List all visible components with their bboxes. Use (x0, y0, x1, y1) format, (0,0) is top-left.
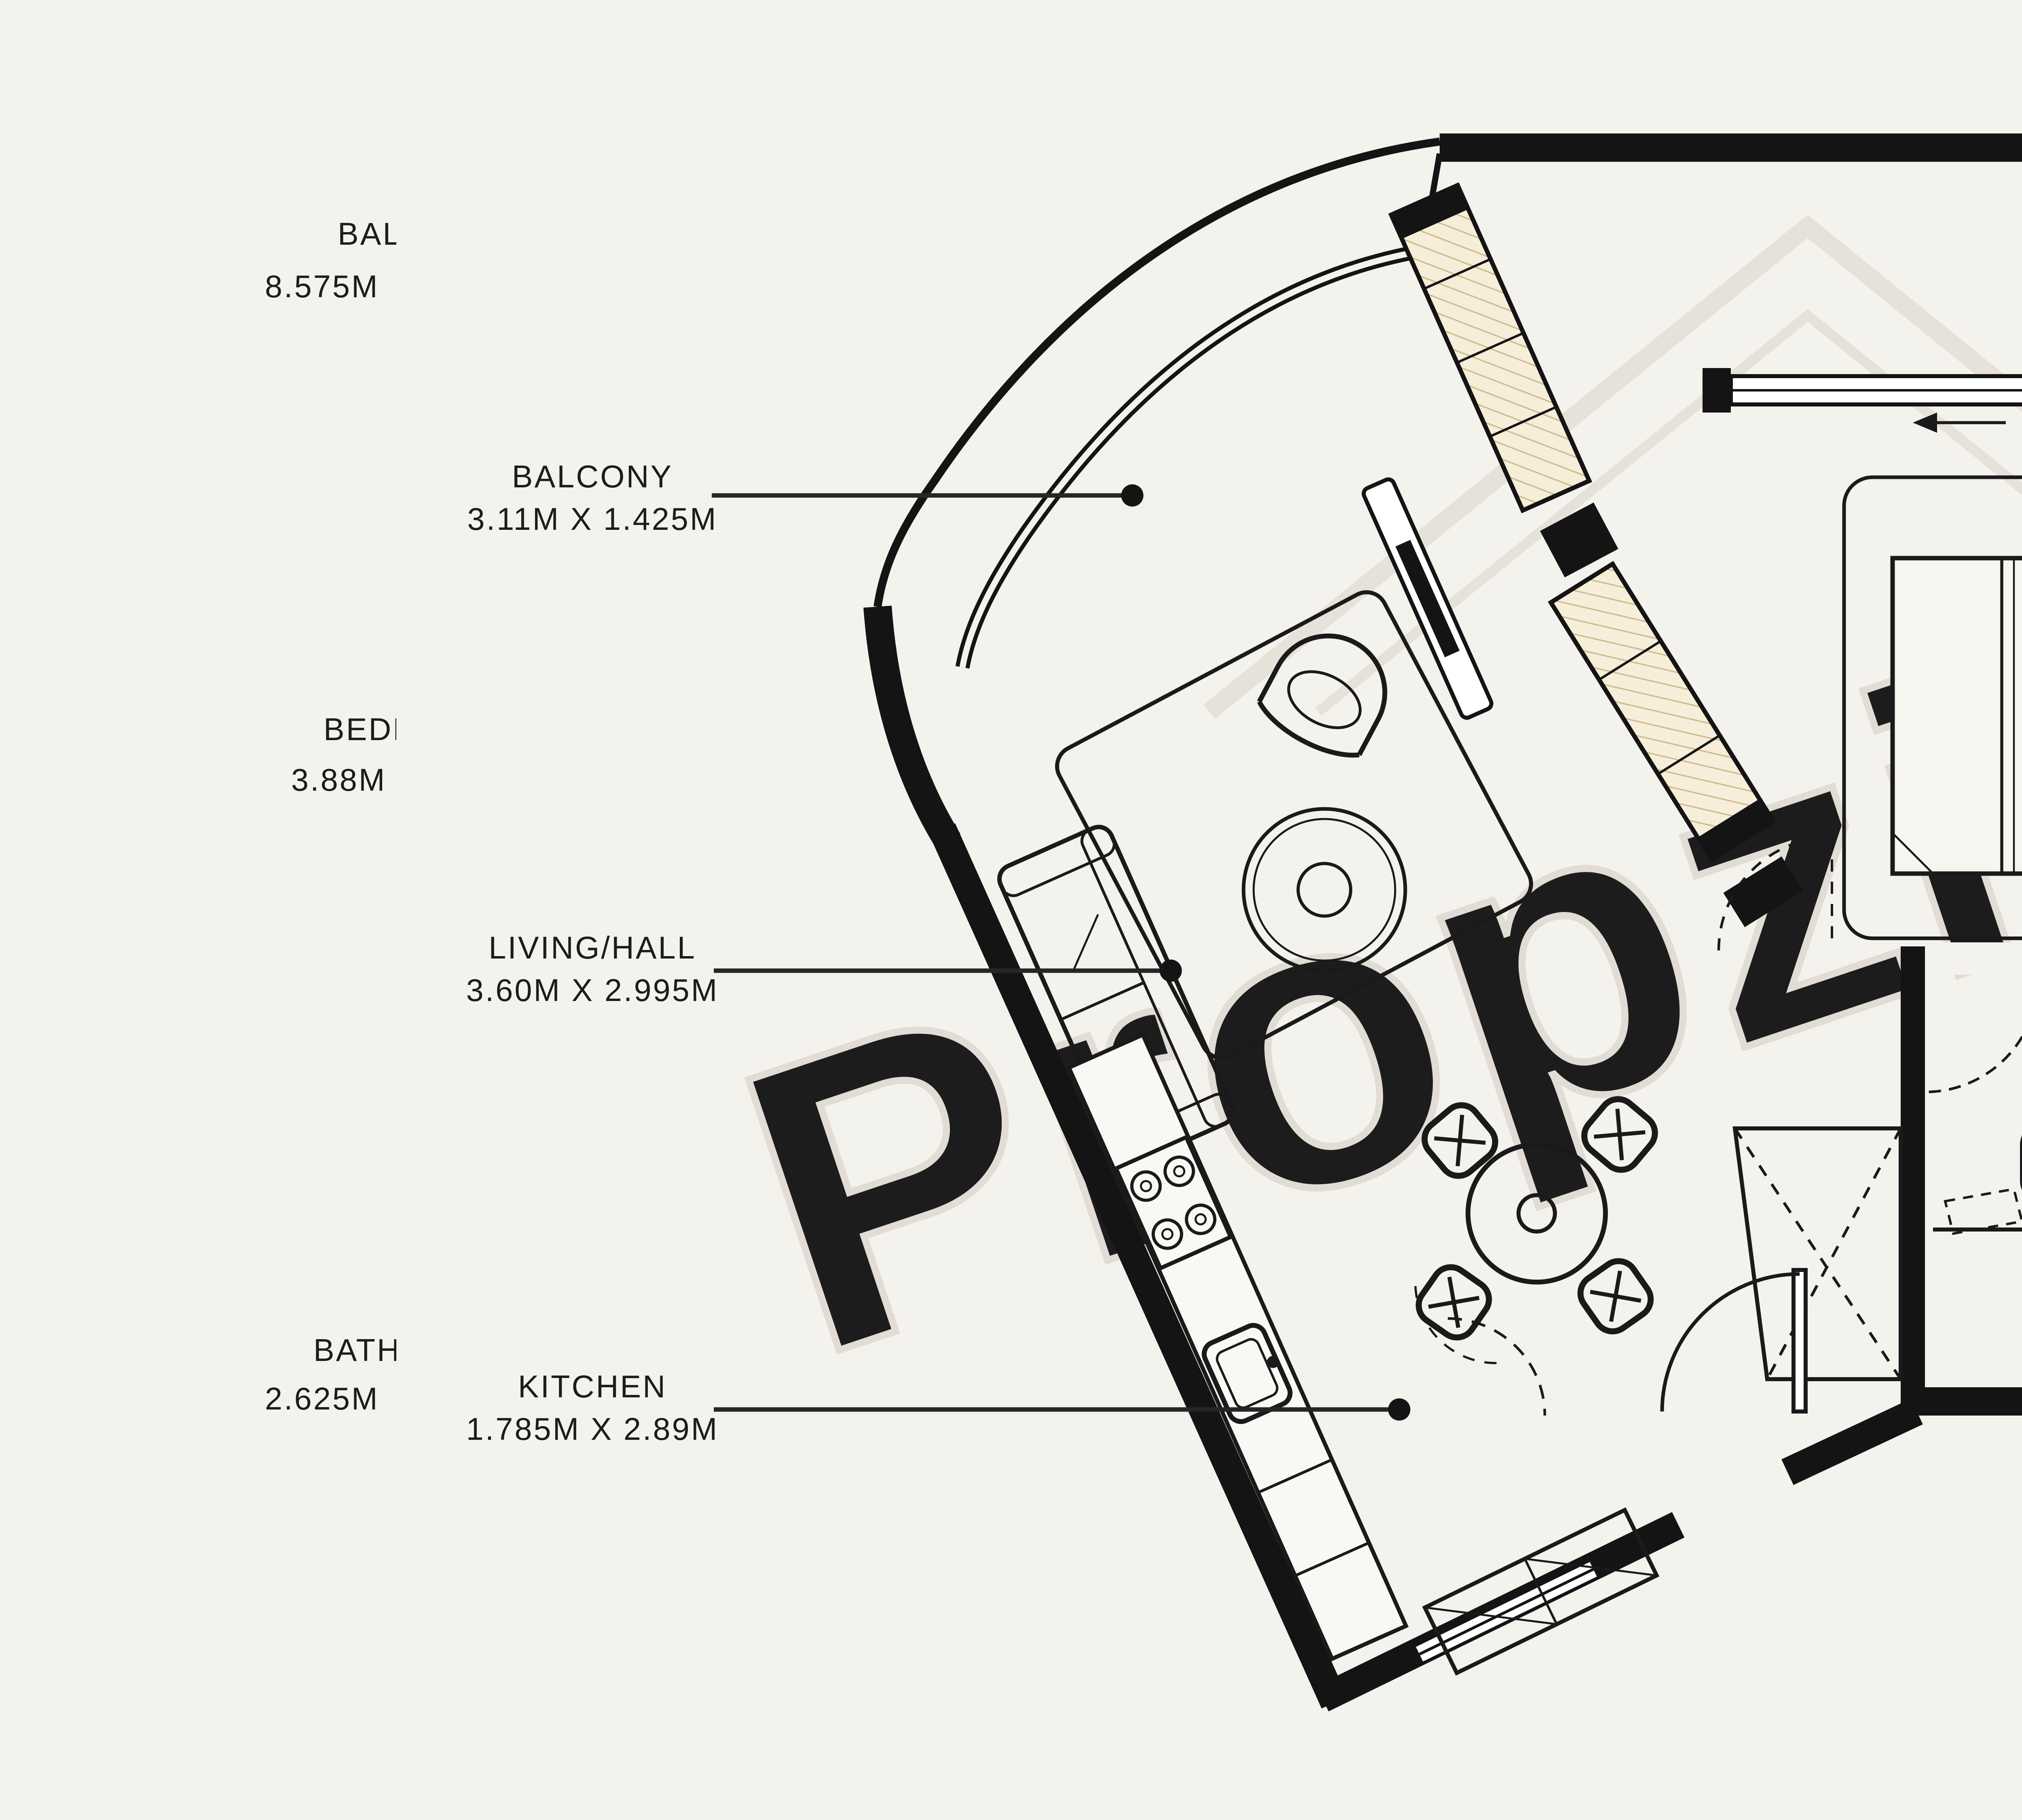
floor-plan-svg: Propzilla R (0, 0, 2022, 1820)
label-living-name: LIVING/HALL (489, 931, 696, 965)
leader-dot-kitchen (1388, 1399, 1411, 1421)
label-balcony-left-dims: 3.11M X 1.425M (467, 502, 718, 537)
edge-label-balcony-frag-dims: 8.575M (265, 269, 379, 304)
edge-label-bathroom-frag-dims: 2.625M (265, 1382, 379, 1416)
bedroom-window (1731, 376, 2022, 404)
floor-plan-page: Propzilla R (0, 0, 2022, 1820)
leader-dot-living (1160, 960, 1182, 982)
label-living-dims: 3.60M X 2.995M (466, 973, 719, 1008)
entry-door-leaf (1794, 1270, 1806, 1412)
leader-dot-balcony-left (1121, 485, 1144, 507)
bathroom-door-gap (1925, 942, 2022, 975)
label-balcony-left-name: BALCONY (512, 459, 673, 494)
edge-label-bedroom-frag-dims: 3.88M (291, 763, 386, 798)
label-kitchen-dims: 1.785M X 2.89M (466, 1412, 719, 1447)
wall-top (1440, 133, 2022, 162)
edge-label-bathroom-frag: BATH (313, 1333, 401, 1368)
edge-label-balcony-frag: BAL (338, 217, 402, 252)
wall-window-cap-left (1703, 368, 1731, 413)
label-kitchen-name: KITCHEN (518, 1369, 667, 1404)
wall-bathroom-left (1901, 946, 1925, 1416)
